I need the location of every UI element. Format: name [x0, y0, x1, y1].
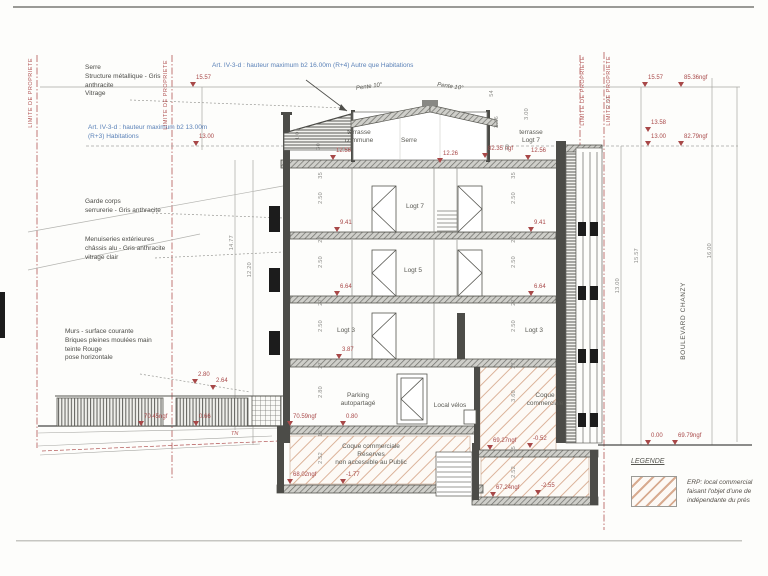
room-label: terrasse Logt 7	[509, 129, 553, 145]
dimension-label: 2.50	[318, 256, 324, 268]
dimension-label: 12.20	[247, 262, 253, 277]
dimension-label: 27	[511, 299, 517, 306]
level-marker: 0.00	[645, 433, 663, 445]
dimension-label: 2.46	[494, 116, 500, 128]
material-note: Garde corps serrurerie - Gris anthracite	[85, 198, 161, 216]
level-triangle-icon	[645, 127, 651, 132]
partitions	[352, 168, 457, 359]
room-label: Coque commerciale	[517, 392, 573, 408]
level-marker: 12.56	[525, 148, 546, 160]
level-triangle-icon	[190, 82, 196, 87]
dimension-label: 12	[318, 430, 324, 437]
level-triangle-icon	[287, 479, 293, 484]
level-triangle-icon	[340, 479, 346, 484]
dimension-label: 13.00	[615, 278, 621, 293]
level-triangle-icon	[336, 354, 342, 359]
dimension-label: 27	[318, 299, 324, 306]
level-triangle-icon	[334, 227, 340, 232]
level-triangle-icon	[678, 82, 684, 87]
level-triangle-icon	[490, 492, 496, 497]
dimension-label: 30	[505, 144, 511, 151]
dimension-label: 35	[318, 172, 324, 179]
dimension-label: 16.00	[707, 243, 713, 258]
street-wall	[55, 396, 283, 426]
dimension-label: 3.00	[524, 108, 530, 120]
level-marker: 12.56	[330, 148, 351, 160]
dimension-label: 35	[511, 172, 517, 179]
dimension-label: 27	[511, 236, 517, 243]
level-marker: 68.02ngf	[287, 472, 316, 484]
level-marker: 70.59ngf	[287, 414, 316, 426]
room-label: Coque commerciale Réserves non accessibl…	[311, 443, 431, 466]
level-triangle-icon	[482, 153, 488, 158]
room-label: Logt 3	[514, 327, 554, 335]
regulation-note: Art. IV-3-d : hauteur maximum b2 16.00m …	[212, 62, 413, 71]
level-marker: 6.64	[334, 284, 352, 296]
level-marker: 12.26	[437, 151, 458, 163]
level-marker: 82.79ngf	[678, 134, 707, 146]
room-label: Local vélos	[425, 402, 475, 410]
legend-erp-text: ERP: local commercial faisant l'objet d'…	[687, 479, 752, 505]
dimension-label: 2.50	[318, 192, 324, 204]
dimension-label: 2.50	[511, 256, 517, 268]
property-limit-label: LIMITE DE PROPRIETE	[163, 60, 169, 130]
material-note: Menuiseries extérieures châssis alu - Gr…	[85, 236, 165, 262]
level-triangle-icon	[330, 155, 336, 160]
dimension-label: 27	[318, 362, 324, 369]
level-marker: 85.36ngf	[678, 75, 707, 87]
level-triangle-icon	[138, 421, 144, 426]
property-limit-label: LIMITE DE PROPRIETE	[28, 58, 34, 128]
level-marker: 9.41	[334, 220, 352, 232]
level-marker: 9.41	[528, 220, 546, 232]
dimension-label: 54	[489, 90, 495, 97]
room-label: Serre	[389, 137, 429, 145]
level-marker: -2.55	[535, 483, 555, 495]
architectural-section-sheet: TN BOULEVARD CHANZY LEGENDE ERP: local c…	[0, 0, 768, 576]
level-marker: 2.80	[192, 372, 210, 384]
dimension-label: 1.01	[295, 128, 301, 140]
property-limit-label: LIMITE DE PROPRIETE	[606, 56, 612, 126]
level-triangle-icon	[535, 490, 541, 495]
room-label: Logt 5	[393, 267, 433, 275]
level-triangle-icon	[437, 158, 443, 163]
dimension-label: 35	[511, 446, 517, 453]
dimension-label: 30	[316, 143, 322, 150]
level-triangle-icon	[334, 291, 340, 296]
level-triangle-icon	[193, 421, 199, 426]
regulation-note: Art. IV-3-d : hauteur maximum b2 13.00m …	[88, 124, 207, 142]
material-note: Serre Structure métallique - Gris anthra…	[85, 64, 161, 99]
dimension-label: 2.50	[511, 192, 517, 204]
level-marker: -0.52	[527, 436, 547, 448]
level-marker: 6.64	[528, 284, 546, 296]
level-marker: 0.66	[193, 414, 211, 426]
level-triangle-icon	[642, 82, 648, 87]
dimension-label: 2.80	[318, 386, 324, 398]
level-triangle-icon	[487, 445, 493, 450]
dimension-label: 2.50	[318, 320, 324, 332]
level-triangle-icon	[192, 379, 198, 384]
level-marker: 13.58	[645, 120, 666, 132]
legend-erp-swatch	[631, 476, 677, 507]
level-marker: 15.57	[642, 75, 663, 87]
dimension-label: 27	[511, 362, 517, 369]
tn-label: TN	[231, 431, 238, 437]
property-limit-label: LIMITE DE PROPRIETE	[580, 56, 586, 126]
level-triangle-icon	[527, 443, 533, 448]
room-label: Parking autopartagé	[326, 392, 390, 408]
level-triangle-icon	[678, 141, 684, 146]
dimension-label: 2.52	[511, 466, 517, 478]
dimension-label: 14.77	[229, 235, 235, 250]
level-triangle-icon	[645, 440, 651, 445]
level-marker: -1.77	[340, 472, 360, 484]
level-marker: 67.24ngf	[490, 485, 519, 497]
level-triangle-icon	[525, 155, 531, 160]
level-marker: 15.57	[190, 75, 211, 87]
room-label: terrasse commune	[334, 129, 384, 145]
level-triangle-icon	[672, 440, 678, 445]
level-triangle-icon	[340, 421, 346, 426]
level-triangle-icon	[645, 141, 651, 146]
level-triangle-icon	[193, 141, 199, 146]
level-marker: 13.00	[645, 134, 666, 146]
doors	[372, 186, 482, 424]
street-name-label: BOULEVARD CHANZY	[680, 282, 687, 360]
dimension-label: 27	[318, 236, 324, 243]
level-triangle-icon	[528, 227, 534, 232]
legend-title: LEGENDE	[631, 458, 664, 465]
dimension-label: 15.57	[634, 248, 640, 263]
level-marker: 69.79ngf	[672, 433, 701, 445]
level-triangle-icon	[287, 421, 293, 426]
level-triangle-icon	[210, 385, 216, 390]
room-label: Logt 7	[395, 203, 435, 211]
room-label: Logt 3	[326, 327, 366, 335]
level-marker: 2.64	[210, 378, 228, 390]
level-triangle-icon	[528, 291, 534, 296]
material-note: Murs - surface courante Briques pleines …	[65, 328, 152, 363]
level-marker: 70.45ngf	[138, 414, 167, 426]
level-marker: 3.87	[336, 347, 354, 359]
level-marker: 0.80	[340, 414, 358, 426]
